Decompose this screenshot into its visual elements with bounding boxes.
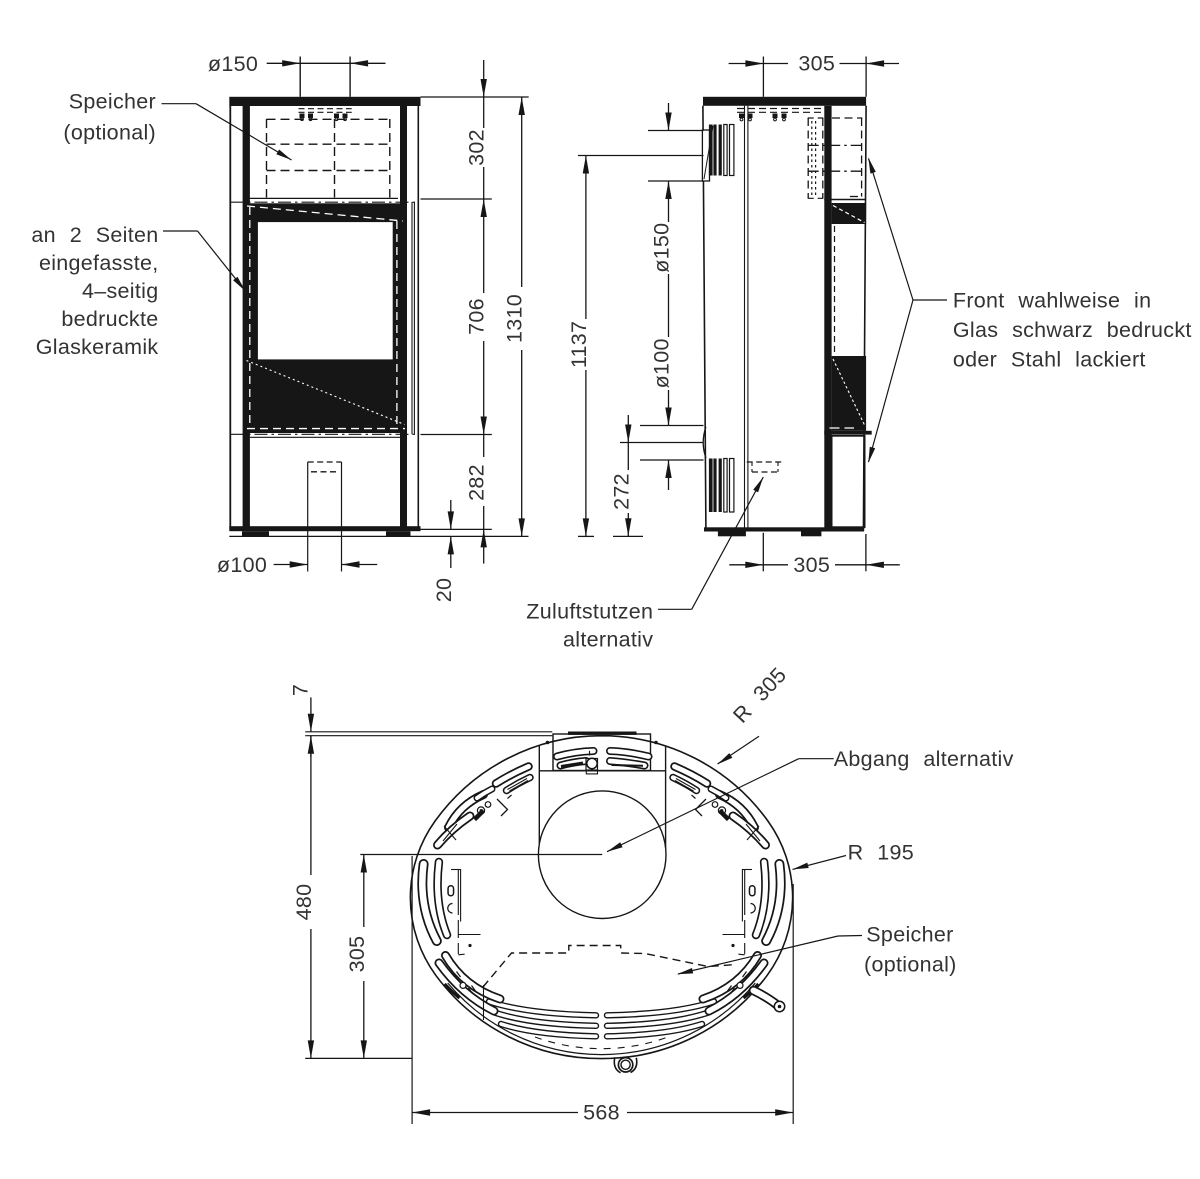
svg-text:305: 305 (345, 936, 369, 973)
svg-text:ø150: ø150 (208, 52, 258, 76)
svg-text:ø150: ø150 (650, 223, 674, 273)
svg-text:1310: 1310 (503, 294, 527, 343)
svg-text:ø100: ø100 (650, 338, 674, 388)
svg-text:(optional): (optional) (63, 121, 156, 145)
svg-text:Glaskeramik: Glaskeramik (36, 335, 159, 359)
svg-text:Glas schwarz bedruckt: Glas schwarz bedruckt (953, 318, 1192, 342)
svg-text:1137: 1137 (567, 321, 591, 368)
svg-text:282: 282 (465, 464, 489, 501)
svg-text:bedruckte: bedruckte (61, 307, 158, 331)
svg-text:568: 568 (583, 1101, 620, 1125)
svg-text:Speicher: Speicher (69, 90, 156, 114)
svg-text:302: 302 (465, 129, 489, 166)
svg-text:4–seitig: 4–seitig (82, 279, 159, 303)
svg-text:20: 20 (432, 578, 456, 603)
svg-text:an 2 Seiten: an 2 Seiten (31, 223, 158, 247)
svg-text:alternativ: alternativ (563, 628, 653, 652)
svg-text:oder Stahl lackiert: oder Stahl lackiert (953, 348, 1146, 372)
svg-text:eingefasste,: eingefasste, (39, 251, 159, 275)
svg-text:R 195: R 195 (848, 841, 914, 865)
svg-text:Zuluftstutzen: Zuluftstutzen (526, 600, 653, 624)
svg-text:Abgang alternativ: Abgang alternativ (834, 747, 1014, 771)
svg-text:Front wahlweise in: Front wahlweise in (953, 289, 1151, 313)
svg-text:7: 7 (289, 684, 313, 696)
svg-text:(optional): (optional) (864, 953, 957, 977)
svg-text:ø100: ø100 (217, 553, 267, 577)
svg-text:305: 305 (793, 553, 830, 577)
svg-text:305: 305 (798, 52, 835, 76)
svg-text:272: 272 (609, 473, 633, 510)
svg-text:706: 706 (465, 298, 489, 335)
svg-text:Speicher: Speicher (866, 923, 953, 947)
svg-text:480: 480 (292, 884, 316, 921)
svg-text:R 305: R 305 (728, 663, 791, 728)
